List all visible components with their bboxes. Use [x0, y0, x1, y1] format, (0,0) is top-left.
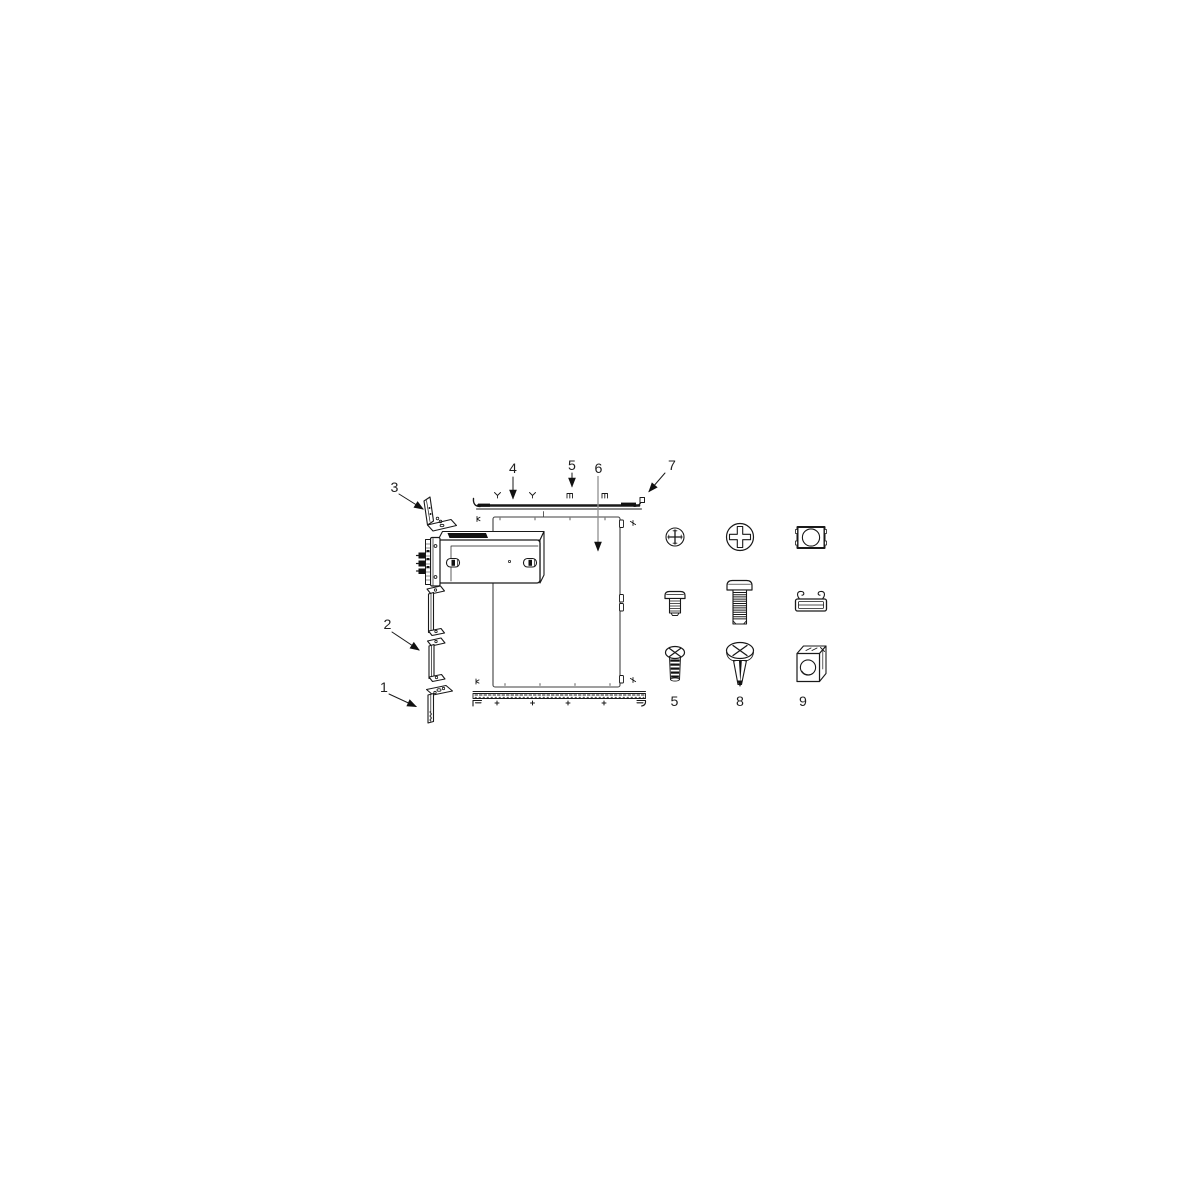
- large-screw-3d-icon: [727, 643, 754, 688]
- callout-6-label: 6: [595, 461, 603, 477]
- callout-5: 5: [568, 458, 576, 487]
- hardware-legend: 5 8: [665, 524, 827, 711]
- diagram-page: 5 8: [0, 0, 1200, 1200]
- cage-nut-top-icon: [796, 527, 827, 548]
- middle-bracket-strip: [428, 638, 446, 682]
- large-screw-side-icon: [727, 581, 752, 625]
- callout-7: 7: [649, 458, 676, 492]
- pan-head-screw-side-icon: [665, 592, 685, 616]
- exploded-view-figure: 5 8: [0, 0, 1200, 1200]
- pan-head-screw-top-icon: [666, 528, 684, 546]
- callout-2-label: 2: [384, 617, 392, 633]
- corner-fastener-mark: [477, 517, 480, 522]
- legend-label-9: 9: [799, 694, 807, 710]
- rail-end-hook: [473, 701, 482, 707]
- bottom-rail: [473, 692, 646, 707]
- callout-3: 3: [391, 480, 423, 509]
- appliance-unit: [417, 532, 545, 587]
- corner-fastener-mark: [630, 678, 635, 683]
- rail-end-hook: [637, 701, 646, 707]
- callout-3-label: 3: [391, 480, 399, 496]
- top-rail: [473, 493, 644, 510]
- top-angle-bracket: [424, 497, 457, 531]
- callout-1-label: 1: [380, 680, 388, 696]
- front-edge: [426, 540, 431, 585]
- bottom-bracket-strip: [427, 686, 453, 724]
- rear-connectors: [417, 553, 426, 575]
- callout-4-label: 4: [509, 461, 517, 477]
- callout-2: 2: [384, 617, 419, 650]
- callout-7-label: 7: [668, 458, 676, 474]
- callout-1: 1: [380, 680, 416, 707]
- rail-end-tab: [640, 498, 645, 503]
- panel-clip: [620, 676, 624, 684]
- corner-fastener-mark: [476, 679, 479, 684]
- panel-clip: [620, 604, 624, 612]
- cage-nut-3d-icon: [797, 646, 826, 682]
- cage-nut-side-icon: [796, 591, 827, 611]
- upper-bracket-strip: [427, 586, 445, 636]
- callout-5-label: 5: [568, 458, 576, 474]
- panel-clip: [620, 595, 624, 603]
- large-screw-top-icon: [727, 524, 754, 551]
- panel-clip: [620, 520, 624, 528]
- corner-fastener-mark: [630, 521, 635, 526]
- callout-4: 4: [509, 461, 517, 499]
- keyhole-slot: [524, 559, 537, 568]
- legend-label-5: 5: [671, 694, 679, 710]
- legend-label-8: 8: [736, 694, 744, 710]
- keyhole-slot: [447, 559, 460, 568]
- vent-strip: [448, 533, 489, 538]
- pan-head-screw-3d-icon: [666, 647, 685, 682]
